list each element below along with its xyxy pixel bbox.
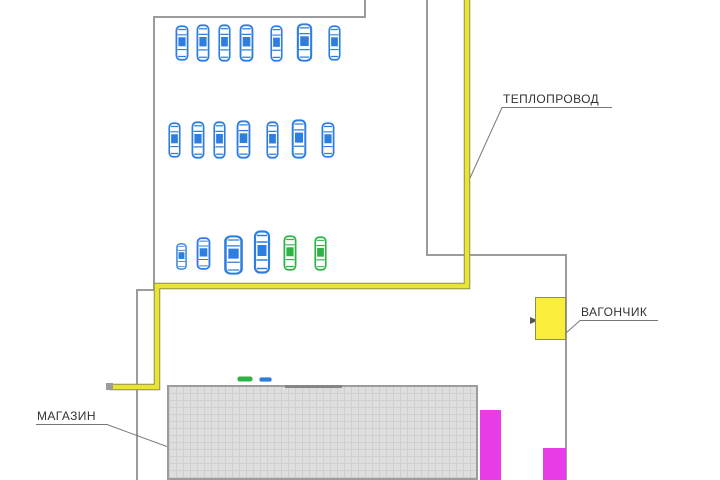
heat-pipeline-leader	[470, 108, 612, 179]
car-icon	[175, 243, 188, 270]
mini-car-icon	[237, 376, 253, 382]
car-icon	[282, 235, 298, 271]
car-icon	[212, 121, 227, 159]
mini-car-icon	[259, 377, 272, 382]
car-icon	[327, 25, 342, 61]
car-icon	[295, 23, 314, 62]
building-entrance-segment	[285, 385, 342, 388]
car-icon	[195, 24, 211, 62]
trailer-rect	[535, 297, 566, 340]
car-icon	[235, 120, 252, 159]
car-icon	[195, 237, 212, 270]
car-icon	[174, 25, 190, 61]
pipeline-endcap	[106, 383, 113, 390]
site-plan-canvas: ТЕПЛОПРОВОД ВАГОНЧИК МАГАЗИН	[0, 0, 720, 480]
car-icon	[313, 236, 328, 271]
shop-building	[167, 385, 478, 480]
car-icon	[238, 24, 255, 62]
car-icon	[217, 24, 232, 62]
heat-pipeline-outline	[109, 0, 467, 387]
heat-pipeline	[109, 0, 467, 387]
car-icon	[190, 121, 206, 159]
trailer-leader	[566, 321, 658, 334]
car-icon	[269, 25, 284, 62]
trailer-label: ВАГОНЧИК	[581, 306, 647, 319]
car-icon	[290, 119, 308, 159]
car-icon	[320, 122, 336, 158]
car-icon	[167, 122, 182, 158]
car-icon	[252, 230, 272, 274]
car-icon	[265, 121, 280, 159]
car-icon	[222, 235, 245, 275]
shop-label: МАГАЗИН	[37, 410, 96, 423]
magenta-block-1	[480, 410, 501, 480]
heat-pipeline-label: ТЕПЛОПРОВОД	[503, 93, 599, 106]
magenta-block-2	[543, 448, 566, 480]
